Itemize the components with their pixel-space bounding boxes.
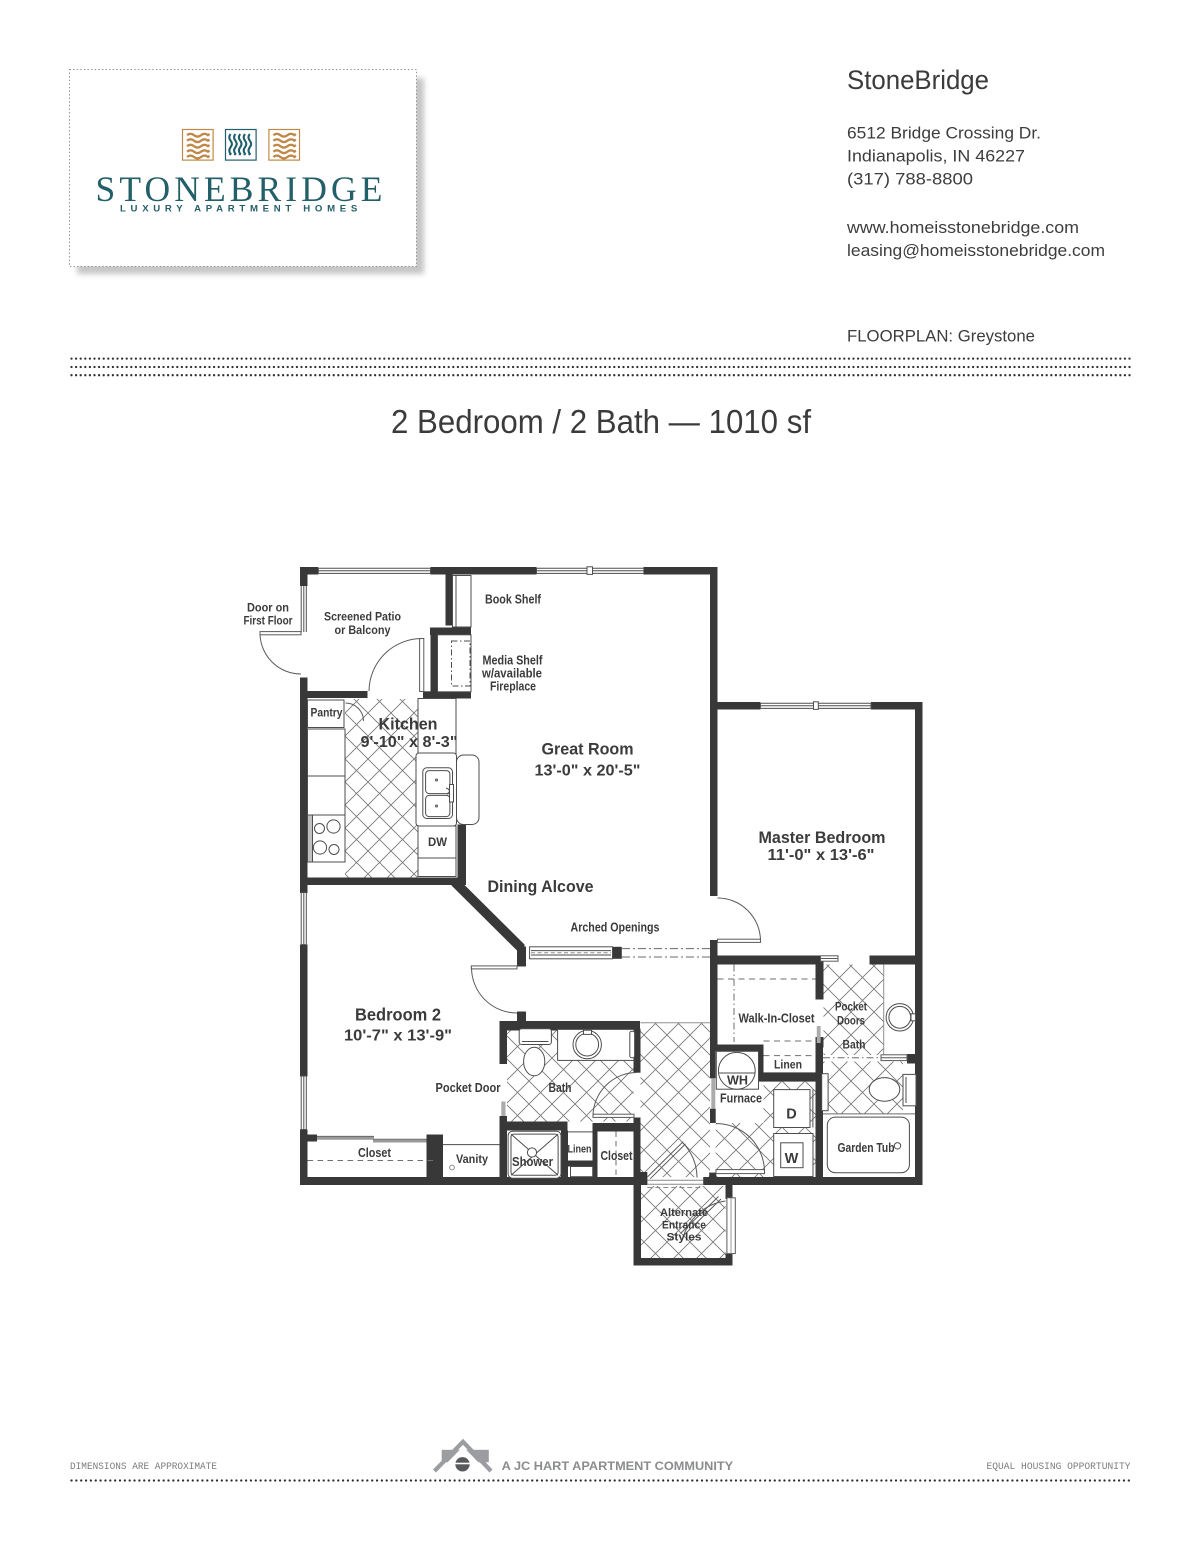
svg-text:Entrance: Entrance [662,1220,706,1232]
svg-text:leasing@homeisstonebridge.com: leasing@homeisstonebridge.com [847,241,1105,260]
svg-text:Book Shelf: Book Shelf [485,592,542,607]
svg-text:Alternate: Alternate [660,1207,708,1219]
svg-text:Kitchen: Kitchen [379,715,438,734]
svg-text:Indianapolis, IN 46227: Indianapolis, IN 46227 [847,147,1025,166]
svg-text:Screened Patio: Screened Patio [324,610,401,624]
svg-text:Pocket Door: Pocket Door [436,1080,501,1095]
svg-text:First Floor: First Floor [244,614,293,628]
svg-text:Styles: Styles [667,1232,702,1244]
svg-text:StoneBridge: StoneBridge [847,65,989,95]
svg-text:W: W [785,1151,799,1167]
svg-text:LUXURY APARTMENT HOMES: LUXURY APARTMENT HOMES [120,204,362,215]
svg-text:6512 Bridge Crossing Dr.: 6512 Bridge Crossing Dr. [847,124,1041,143]
svg-text:Bath: Bath [843,1038,866,1052]
svg-text:Closet: Closet [358,1146,392,1160]
svg-text:11'-0" x 13'-6": 11'-0" x 13'-6" [768,847,875,864]
svg-text:Linen: Linen [568,1144,592,1156]
svg-text:FLOORPLAN: Greystone: FLOORPLAN: Greystone [847,328,1035,346]
svg-text:Walk-In-Closet: Walk-In-Closet [739,1012,816,1026]
svg-text:Furnace: Furnace [720,1091,762,1106]
svg-text:Linen: Linen [774,1058,802,1072]
svg-text:w/available: w/available [481,667,542,681]
svg-text:www.homeisstonebridge.com: www.homeisstonebridge.com [846,218,1079,237]
svg-text:Great Room: Great Room [542,740,634,759]
svg-text:Garden Tub: Garden Tub [838,1140,895,1155]
svg-text:or Balcony: or Balcony [335,623,391,637]
svg-text:EQUAL HOUSING OPPORTUNITY: EQUAL HOUSING OPPORTUNITY [987,1462,1131,1473]
svg-text:DW: DW [428,837,447,849]
svg-text:Master Bedroom: Master Bedroom [759,829,886,847]
svg-text:Dining Alcove: Dining Alcove [488,877,594,896]
svg-text:(317) 788-8800: (317) 788-8800 [847,170,973,189]
svg-text:WH: WH [727,1073,748,1088]
svg-text:Shower: Shower [512,1154,553,1169]
svg-text:9'-10" x 8'-3": 9'-10" x 8'-3" [361,734,458,751]
svg-text:Pocket: Pocket [835,1000,867,1014]
svg-text:A JC HART APARTMENT COMMUNITY: A JC HART APARTMENT COMMUNITY [502,1459,734,1473]
svg-text:Vanity: Vanity [456,1152,488,1166]
svg-text:Pantry: Pantry [311,708,344,720]
svg-text:Fireplace: Fireplace [490,680,536,694]
svg-text:13'-0" x 20'-5": 13'-0" x 20'-5" [535,763,641,780]
svg-text:DIMENSIONS ARE APPROXIMATE: DIMENSIONS ARE APPROXIMATE [70,1462,217,1473]
svg-text:Doors: Doors [837,1014,865,1028]
svg-text:10'-7" x 13'-9": 10'-7" x 13'-9" [344,1028,452,1045]
svg-text:Bath: Bath [549,1080,572,1095]
svg-text:D: D [786,1107,796,1123]
svg-text:Bedroom 2: Bedroom 2 [355,1005,441,1025]
svg-text:2 Bedroom / 2 Bath — 1010 sf: 2 Bedroom / 2 Bath — 1010 sf [391,403,812,440]
svg-text:Closet: Closet [601,1149,634,1163]
svg-text:Arched Openings: Arched Openings [571,921,660,935]
svg-text:Media Shelf: Media Shelf [483,654,544,668]
svg-text:Door on: Door on [247,601,289,615]
